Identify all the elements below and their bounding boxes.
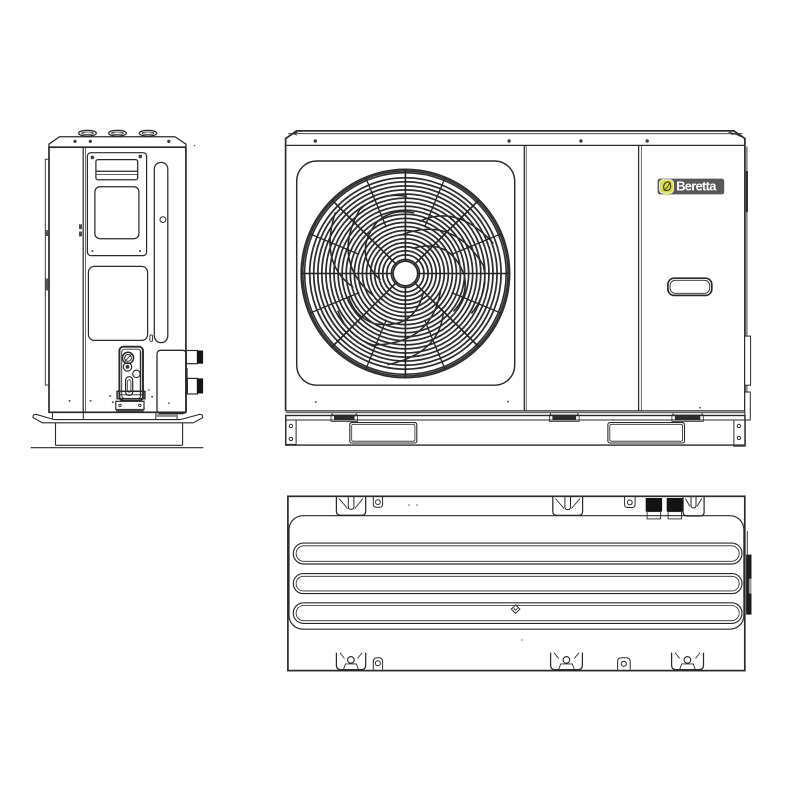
- svg-text:Beretta: Beretta: [676, 179, 717, 194]
